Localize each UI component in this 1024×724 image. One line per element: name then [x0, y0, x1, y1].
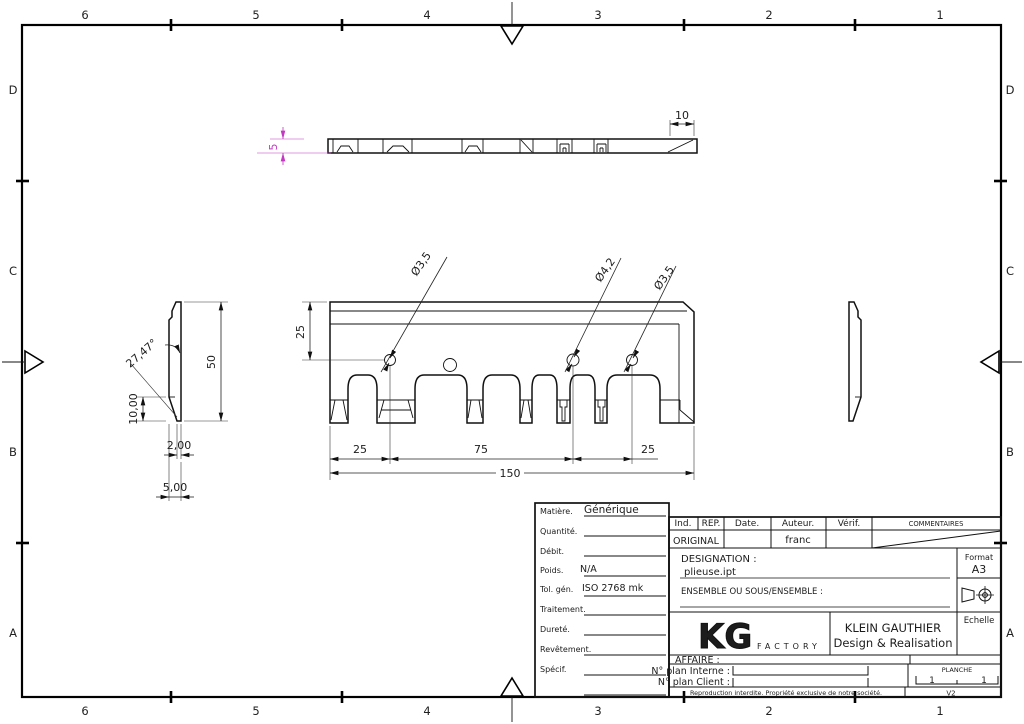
- front-view-inner-lines: [330, 311, 694, 423]
- zone-col-top: 3: [594, 8, 601, 22]
- col-commentaires: COMMENTAIRES: [909, 520, 964, 528]
- format-label: Format: [965, 553, 993, 562]
- company-name: KLEIN GAUTHIER: [845, 621, 941, 635]
- zone-row-left: B: [9, 445, 17, 459]
- material-row-label: Dureté.: [540, 624, 570, 634]
- material-value: ISO 2768 mk: [582, 583, 644, 594]
- front-view-holes: [385, 354, 638, 372]
- col-verif: Vérif.: [838, 518, 861, 529]
- zone-col-top: 2: [765, 8, 772, 22]
- zone-row-left: A: [9, 626, 17, 640]
- material-row-label: Revêtement.: [540, 644, 591, 654]
- zone-row-left: C: [9, 264, 17, 278]
- dim-label-5: 5: [267, 144, 280, 151]
- zone-col-top: 6: [81, 8, 88, 22]
- ensemble-label: ENSEMBLE OU SOUS/ENSEMBLE :: [681, 587, 823, 597]
- dim-label-width: 5,00: [163, 481, 188, 494]
- dim-label-total: 150: [500, 467, 521, 480]
- top-view: 10 5: [257, 109, 697, 165]
- company-tagline: Design & Realisation: [833, 636, 952, 650]
- sheet-frame: 6 5 4 3 2 1 6 5 4 3 2 1 D C B A D C B A: [2, 2, 1022, 722]
- projection-symbol-icon: [962, 586, 994, 604]
- dim-label-span-right: 25: [641, 443, 655, 456]
- dim-label-angle: 27,47°: [123, 336, 159, 370]
- material-row-label: Débit.: [540, 546, 564, 556]
- designation-value: plieuse.ipt: [684, 567, 736, 578]
- footer-notice: Reproduction interdite. Propriété exclus…: [690, 689, 882, 697]
- material-value: Générique: [584, 504, 639, 516]
- title-block: Matière. Quantité. Débit. Poids. Tol. gé…: [535, 503, 1001, 698]
- zone-col-bottom: 1: [936, 704, 943, 718]
- zone-row-right: A: [1006, 626, 1014, 640]
- revision-ind-value: ORIGINAL: [673, 536, 720, 547]
- dim-label-hole2: Ø4,2: [592, 256, 618, 285]
- planche-sheet-no: 1: [929, 676, 935, 686]
- zone-row-left: D: [9, 83, 18, 97]
- version-label: V2: [946, 690, 955, 698]
- dim-label-span-mid: 75: [474, 443, 488, 456]
- dim-label-span-left: 25: [353, 443, 367, 456]
- front-view: Ø3,5 Ø4,2 Ø3,5 25: [294, 250, 694, 480]
- dim-label-height-50: 50: [205, 355, 218, 369]
- drawing-canvas: 6 5 4 3 2 1 6 5 4 3 2 1 D C B A D C B A: [0, 0, 1024, 724]
- zone-col-bottom: 2: [765, 704, 772, 718]
- center-arrow-left-icon: [25, 351, 43, 373]
- zone-col-top: 5: [252, 8, 259, 22]
- kg-logo: KG: [698, 617, 752, 657]
- dim-thickness-5: 5: [257, 127, 331, 165]
- affaire-label: AFFAIRE :: [675, 655, 720, 666]
- zone-col-bottom: 4: [423, 704, 430, 718]
- material-row-label: Poids.: [540, 566, 563, 575]
- plan-client-label: N° plan Client :: [658, 677, 730, 688]
- dim-label-10: 10: [675, 109, 689, 122]
- material-table: Matière. Quantité. Débit. Poids. Tol. gé…: [535, 503, 669, 697]
- center-arrow-right-icon: [981, 351, 999, 373]
- side-view-profile: [169, 302, 181, 421]
- cad-drawing-sheet: 6 5 4 3 2 1 6 5 4 3 2 1 D C B A D C B A: [0, 0, 1024, 724]
- dim-label-hole3: Ø3,5: [651, 264, 677, 293]
- zone-row-right: B: [1006, 445, 1014, 459]
- zone-col-bottom: 3: [594, 704, 601, 718]
- col-date: Date.: [735, 519, 759, 529]
- dim-label-tip-width: 2,00: [167, 439, 192, 452]
- zone-col-top: 4: [423, 8, 430, 22]
- dim-label-offset-25: 25: [294, 325, 307, 339]
- zone-row-right: C: [1006, 264, 1014, 278]
- material-value: N/A: [580, 564, 597, 575]
- plan-interne-label: N° plan Interne :: [651, 666, 730, 677]
- zone-row-right: D: [1006, 83, 1015, 97]
- plan-client-field: [733, 678, 868, 687]
- scale-label: Echelle: [964, 616, 995, 626]
- material-row-label: Traitement.: [539, 605, 586, 614]
- center-arrow-top-icon: [501, 26, 523, 44]
- plan-interne-field: [733, 666, 868, 675]
- dim-chamfer-10: 10: [670, 109, 694, 136]
- col-rep: REP.: [702, 519, 721, 529]
- col-ind: Ind.: [675, 519, 692, 529]
- side-view-left-dims: 50 27,47° 10,00 2,00 5,00: [123, 302, 228, 501]
- side-view-right: [849, 302, 861, 421]
- material-row-label: Tol. gén.: [539, 584, 573, 594]
- dim-label-foot-height: 10,00: [127, 393, 140, 425]
- designation-label: DESIGNATION :: [681, 554, 757, 565]
- kg-logo-sub: FACTORY: [757, 642, 821, 651]
- revision-header: Ind. REP. Date. Auteur. Vérif. COMMENTAI…: [675, 518, 964, 529]
- zone-ticks: [16, 19, 1007, 703]
- centering-arrows: [2, 2, 1022, 722]
- material-row-label: Quantité.: [540, 526, 577, 536]
- planche-label: PLANCHE: [942, 666, 973, 674]
- zone-col-bottom: 6: [81, 704, 88, 718]
- revision-author-value: franc: [785, 535, 811, 546]
- format-value: A3: [972, 563, 987, 576]
- zone-col-bottom: 5: [252, 704, 259, 718]
- main-title-block: Ind. REP. Date. Auteur. Vérif. COMMENTAI…: [651, 517, 1001, 698]
- material-row-label: Matière.: [540, 506, 573, 516]
- center-arrow-bottom-icon: [501, 678, 523, 696]
- planche-sheet-of: 1: [981, 676, 987, 686]
- material-row-label: Spécif.: [540, 664, 566, 674]
- zone-col-top: 1: [936, 8, 943, 22]
- col-auteur: Auteur.: [782, 519, 814, 529]
- dim-label-hole1: Ø3,5: [408, 250, 434, 279]
- top-view-features: [333, 139, 693, 153]
